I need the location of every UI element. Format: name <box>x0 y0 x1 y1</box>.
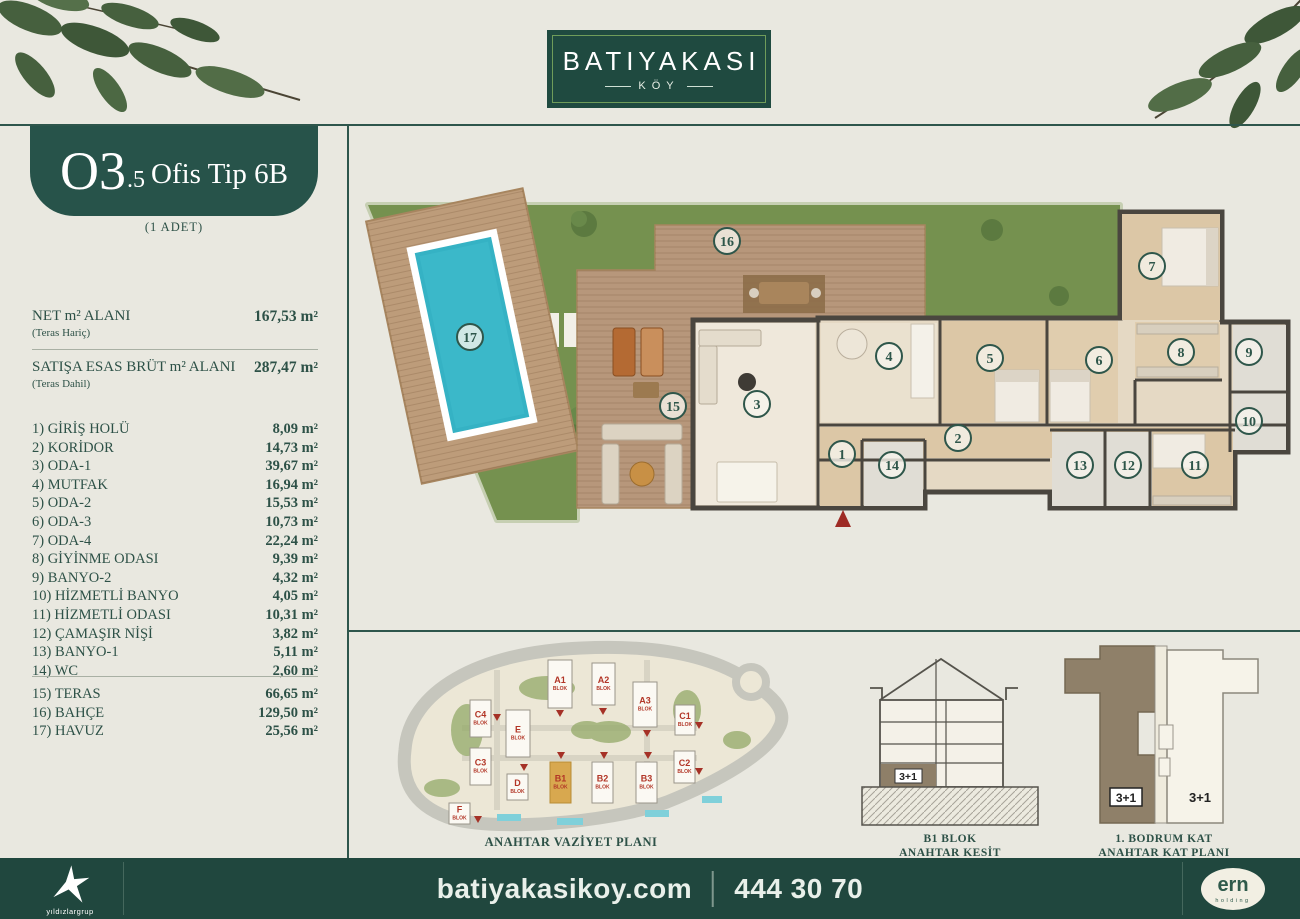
outdoor-area-row: 16) BAHÇE129,50 m² <box>32 704 318 723</box>
outdoor-area-row: 17) HAVUZ25,56 m² <box>32 722 318 741</box>
yildizlar-logo-text: yıldızlargrup <box>24 907 116 916</box>
room-area-row: 13) BANYO-15,11 m² <box>32 643 318 662</box>
area-row-label: 17) HAVUZ <box>32 722 104 741</box>
dash-left-icon <box>605 86 631 87</box>
room-area-row: 2) KORİDOR14,73 m² <box>32 439 318 458</box>
area-row-value: 8,09 m² <box>273 420 318 439</box>
room-area-row: 9) BANYO-24,32 m² <box>32 569 318 588</box>
site-block-word: BLOK <box>596 686 611 692</box>
site-block-word: BLOK <box>677 769 692 775</box>
footer-divider-bar <box>712 871 714 907</box>
area-summary: NET m² ALANI 167,53 m² (Teras Hariç) SAT… <box>32 308 318 390</box>
keyplan-caption-2: ANAHTAR KAT PLANI <box>1098 847 1229 858</box>
area-row-value: 5,11 m² <box>273 643 318 662</box>
section-caption-1: B1 BLOK <box>923 833 976 845</box>
room-marker-number: 6 <box>1096 354 1103 369</box>
site-block-word: BLOK <box>639 785 654 791</box>
site-block-label: C4 <box>475 710 487 720</box>
room-marker-number: 9 <box>1246 346 1253 361</box>
room-marker-number: 16 <box>720 235 734 250</box>
area-row-label: 16) BAHÇE <box>32 704 104 723</box>
net-area-row: NET m² ALANI 167,53 m² <box>32 308 318 326</box>
brand-name: BATIYAKASI <box>563 46 761 77</box>
area-row-label: 2) KORİDOR <box>32 439 114 458</box>
room-marker-number: 14 <box>885 459 899 474</box>
section-diagram: 3+1 B1 BLOK ANAHTAR KESİT <box>840 630 1060 858</box>
brand-subtitle: KÖY <box>605 80 712 92</box>
olive-branch-right <box>1125 0 1300 130</box>
room-marker-number: 7 <box>1149 260 1156 275</box>
room-area-row: 5) ODA-215,53 m² <box>32 494 318 513</box>
roof-line <box>880 659 1003 700</box>
site-block-label: C1 <box>679 711 691 721</box>
foundation <box>862 787 1038 825</box>
room-marker-number: 3 <box>754 398 761 413</box>
gross-area-label: SATIŞA ESAS BRÜT m² ALANI <box>32 359 235 376</box>
site-block-label: E <box>515 725 521 735</box>
site-block-word: BLOK <box>678 722 693 728</box>
area-row-label: 4) MUTFAK <box>32 476 108 495</box>
area-row-label: 6) ODA-3 <box>32 513 91 532</box>
entrance-marker <box>835 510 851 527</box>
area-row-label: 15) TERAS <box>32 685 101 704</box>
adjacent-unit-plan <box>1167 650 1258 823</box>
olive-branch-left <box>0 0 320 125</box>
area-row-value: 9,39 m² <box>273 550 318 569</box>
site-block-word: BLOK <box>511 736 526 742</box>
yildizlar-logo: yıldızlargrup <box>24 864 116 914</box>
ern-logo-text: ern <box>1217 874 1248 896</box>
unit-title: O3.5 Ofis Tip 6B <box>30 126 318 216</box>
site-block-word: BLOK <box>510 789 525 795</box>
room-marker-number: 10 <box>1242 415 1256 430</box>
net-area-value: 167,53 m² <box>254 308 318 326</box>
footer-bar: yıldızlargrup batiyakasikoy.com 444 30 7… <box>0 858 1300 919</box>
dash-right-icon <box>687 86 713 87</box>
room-area-row: 11) HİZMETLİ ODASI10,31 m² <box>32 606 318 625</box>
site-block-label: B2 <box>597 774 609 784</box>
room-area-row: 3) ODA-139,67 m² <box>32 457 318 476</box>
area-row-label: 1) GİRİŞ HOLÜ <box>32 420 129 439</box>
gross-area-row: SATIŞA ESAS BRÜT m² ALANI 287,47 m² <box>32 359 318 377</box>
site-block-label: C2 <box>679 758 691 768</box>
room-area-row: 8) GİYİNME ODASI9,39 m² <box>32 550 318 569</box>
divider <box>32 349 318 350</box>
room-area-row: 1) GİRİŞ HOLÜ8,09 m² <box>32 420 318 439</box>
area-row-label: 9) BANYO-2 <box>32 569 111 588</box>
unit-type-label: 3+1 <box>899 771 917 783</box>
footer-website: batiyakasikoy.com <box>437 873 692 905</box>
room-marker-number: 12 <box>1121 459 1135 474</box>
brand-logo: BATIYAKASI KÖY <box>547 30 771 108</box>
room-area-row: 10) HİZMETLİ BANYO4,05 m² <box>32 587 318 606</box>
site-block-label: C3 <box>475 758 487 768</box>
gross-area-note: (Teras Dahil) <box>32 378 318 390</box>
unit-name: Ofis Tip 6B <box>151 160 288 189</box>
area-row-value: 14,73 m² <box>265 439 318 458</box>
area-row-value: 10,31 m² <box>265 606 318 625</box>
area-row-value: 129,50 m² <box>258 704 318 723</box>
floor-plan: 1234567891011121314151617 <box>347 124 1300 630</box>
site-block-label: A3 <box>639 696 651 706</box>
area-row-value: 15,53 m² <box>265 494 318 513</box>
area-row-label: 10) HİZMETLİ BANYO <box>32 587 179 606</box>
section-caption-2: ANAHTAR KESİT <box>899 845 1001 858</box>
ern-holding-logo: ern holding <box>1194 865 1272 913</box>
site-block-word: BLOK <box>595 785 610 791</box>
room-marker-number: 8 <box>1178 346 1185 361</box>
area-row-label: 3) ODA-1 <box>32 457 91 476</box>
footer-separator-right <box>1182 862 1183 915</box>
site-plan: A1BLOKA2BLOKA3BLOKC1BLOKC4BLOKEBLOKC3BLO… <box>347 630 830 854</box>
area-row-label: 5) ODA-2 <box>32 494 91 513</box>
outdoor-area-row: 15) TERAS66,65 m² <box>32 685 318 704</box>
gross-area-value: 287,47 m² <box>254 359 318 377</box>
site-block-label: B3 <box>641 774 653 784</box>
site-block-word: BLOK <box>638 707 653 713</box>
room-marker-number: 2 <box>955 432 962 447</box>
room-marker-number: 17 <box>463 331 477 346</box>
star-icon <box>44 864 96 904</box>
room-marker-number: 5 <box>987 352 994 367</box>
net-area-note: (Teras Hariç) <box>32 327 318 339</box>
room-area-row: 12) ÇAMAŞIR NİŞİ3,82 m² <box>32 625 318 644</box>
site-plan-caption: ANAHTAR VAZİYET PLANI <box>485 835 658 849</box>
area-row-value: 10,73 m² <box>265 513 318 532</box>
ern-logo-subtext: holding <box>1215 898 1250 904</box>
roundabout <box>736 667 766 697</box>
net-area-label: NET m² ALANI <box>32 308 130 325</box>
room-marker-number: 15 <box>666 400 680 415</box>
unit-code: O3 <box>60 144 126 198</box>
footer-separator-left <box>123 862 124 915</box>
site-block-word: BLOK <box>553 785 568 791</box>
area-row-value: 4,32 m² <box>273 569 318 588</box>
area-row-value: 4,05 m² <box>273 587 318 606</box>
site-block-label: F <box>457 805 463 815</box>
area-row-value: 39,67 m² <box>265 457 318 476</box>
keyplan-caption-1: 1. BODRUM KAT <box>1115 833 1212 845</box>
divider <box>32 676 318 677</box>
key-floor-plan: 3+1 3+1 1. BODRUM KAT ANAHTAR KAT PLANI <box>1060 630 1300 858</box>
left-unit-label: 3+1 <box>1116 791 1137 805</box>
area-row-label: 7) ODA-4 <box>32 532 91 551</box>
area-row-label: 8) GİYİNME ODASI <box>32 550 158 569</box>
outdoor-area-list: 15) TERAS66,65 m²16) BAHÇE129,50 m²17) H… <box>32 685 318 741</box>
area-row-label: 11) HİZMETLİ ODASI <box>32 606 171 625</box>
footer-phone: 444 30 70 <box>734 873 863 905</box>
area-row-value: 25,56 m² <box>265 722 318 741</box>
room-area-list: 1) GİRİŞ HOLÜ8,09 m²2) KORİDOR14,73 m²3)… <box>32 420 318 680</box>
site-block-word: BLOK <box>452 816 467 822</box>
unit-count-note: (1 ADET) <box>30 220 318 235</box>
site-block-label: B1 <box>555 774 567 784</box>
area-row-label: 12) ÇAMAŞIR NİŞİ <box>32 625 153 644</box>
area-row-value: 66,65 m² <box>265 685 318 704</box>
site-block-label: A1 <box>554 675 566 685</box>
room-area-row: 4) MUTFAK16,94 m² <box>32 476 318 495</box>
room-marker-number: 11 <box>1188 459 1201 474</box>
site-block-word: BLOK <box>553 686 568 692</box>
room-marker-number: 1 <box>839 448 846 463</box>
site-block-label: D <box>514 778 521 788</box>
room-marker-number: 13 <box>1073 459 1087 474</box>
area-row-value: 3,82 m² <box>273 625 318 644</box>
room-marker-number: 4 <box>886 350 893 365</box>
site-block-word: BLOK <box>473 769 488 775</box>
site-block-word: BLOK <box>473 721 488 727</box>
area-row-value: 22,24 m² <box>265 532 318 551</box>
footer-contact: batiyakasikoy.com 444 30 70 <box>437 871 864 907</box>
site-block-label: A2 <box>598 675 610 685</box>
outdoor-area-block: 15) TERAS66,65 m²16) BAHÇE129,50 m²17) H… <box>32 676 318 741</box>
area-row-label: 13) BANYO-1 <box>32 643 119 662</box>
room-area-row: 6) ODA-310,73 m² <box>32 513 318 532</box>
area-row-value: 16,94 m² <box>265 476 318 495</box>
room-area-row: 7) ODA-422,24 m² <box>32 532 318 551</box>
right-unit-label: 3+1 <box>1189 790 1211 805</box>
